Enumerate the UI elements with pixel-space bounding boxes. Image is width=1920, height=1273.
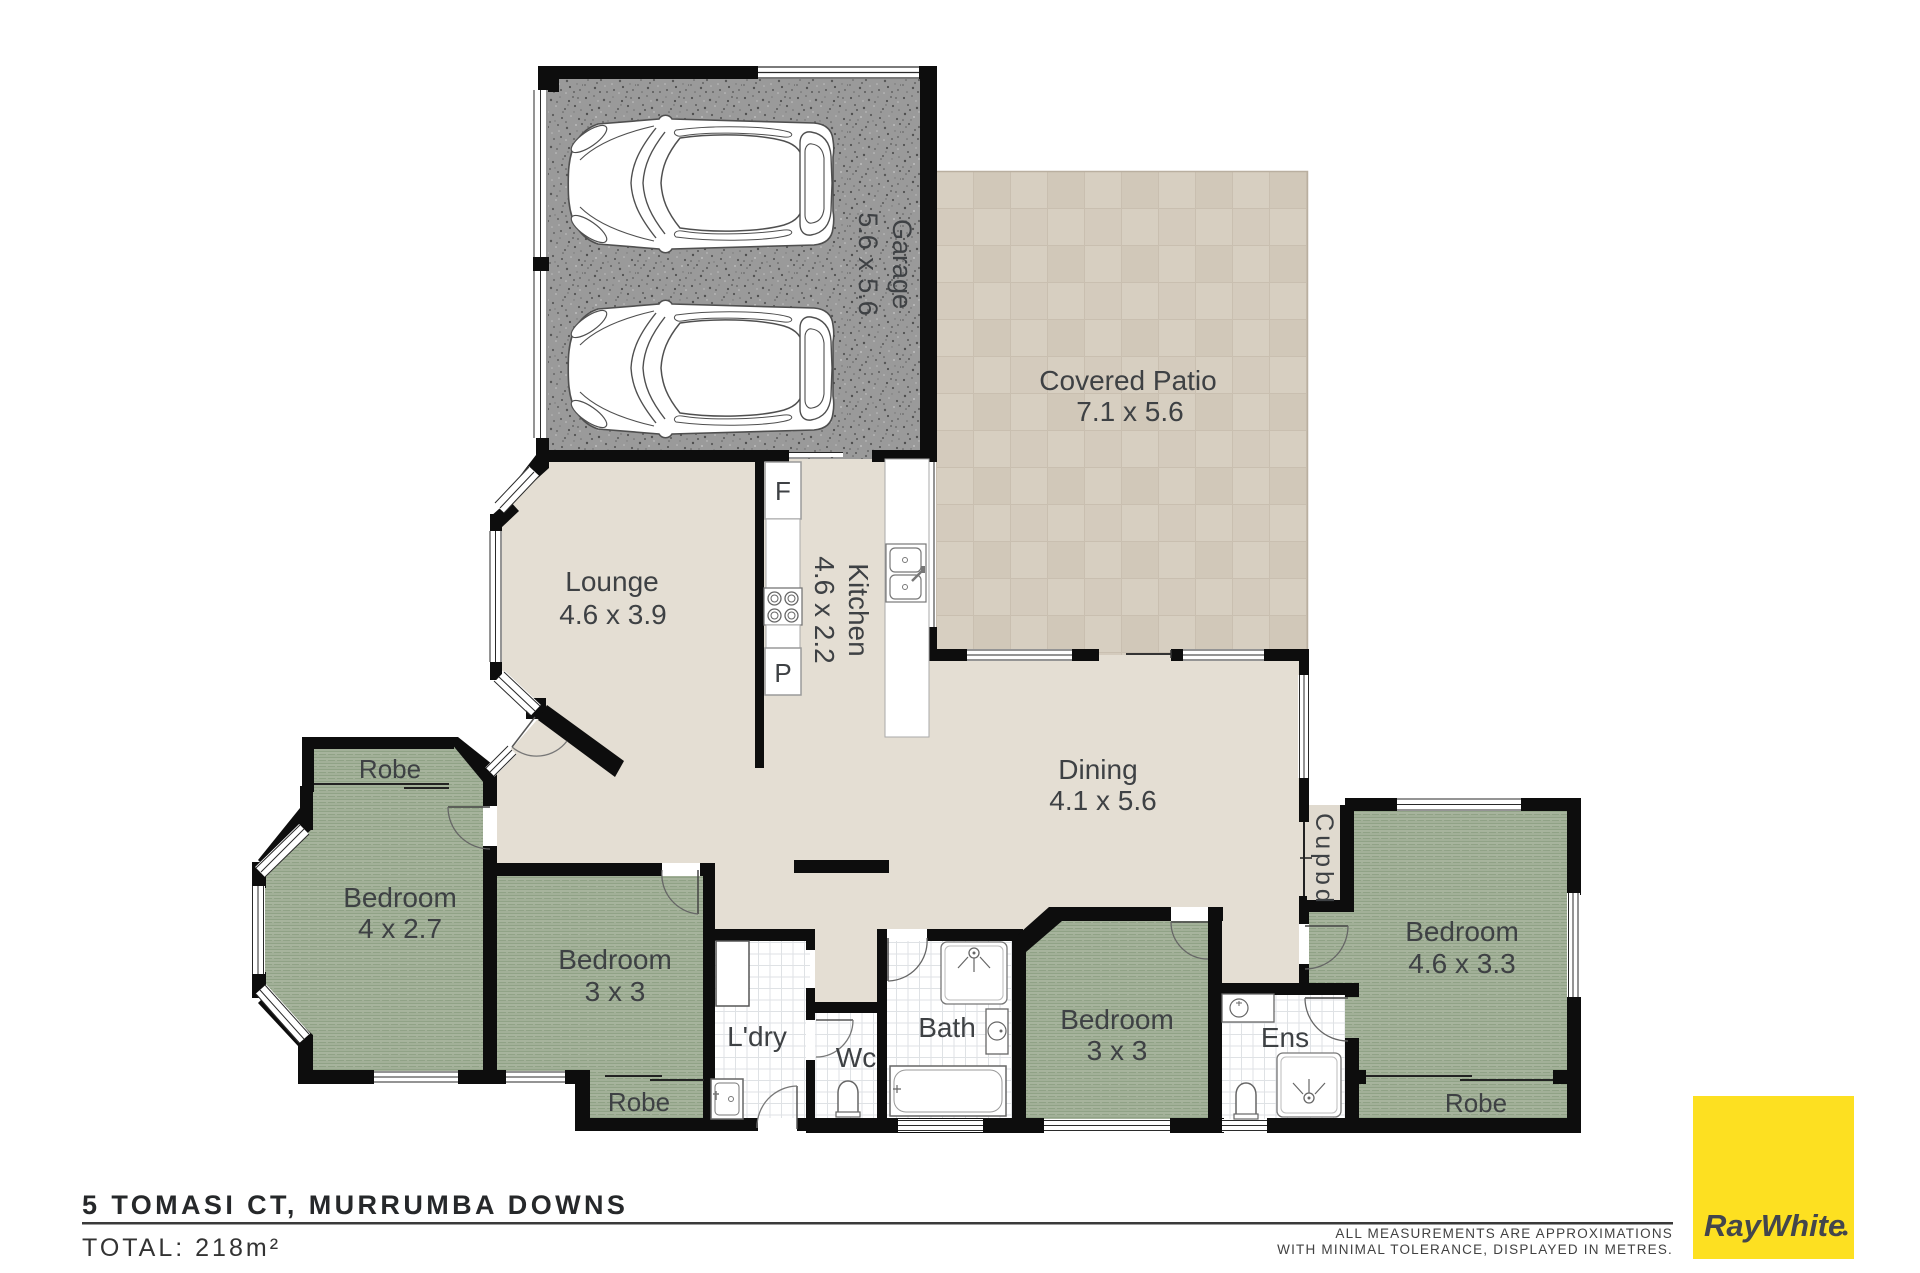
svg-text:Covered Patio: Covered Patio [1039,365,1216,396]
svg-text:Robe: Robe [608,1087,670,1117]
svg-text:TOTAL: 218m²: TOTAL: 218m² [82,1234,281,1262]
svg-text:Bedroom: Bedroom [558,944,672,975]
svg-text:Dining: Dining [1058,754,1137,785]
svg-text:7.1 x 5.6: 7.1 x 5.6 [1076,396,1183,427]
svg-text:5 TOMASI CT, MURRUMBA DOWNS: 5 TOMASI CT, MURRUMBA DOWNS [82,1190,628,1220]
svg-text:4.1 x 5.6: 4.1 x 5.6 [1049,785,1156,816]
svg-text:3 x 3: 3 x 3 [1087,1035,1148,1066]
svg-text:RayWhite: RayWhite [1704,1208,1845,1243]
svg-text:4 x 2.7: 4 x 2.7 [358,913,442,944]
svg-text:P: P [774,658,791,688]
svg-text:Robe: Robe [359,754,421,784]
svg-text:5.6 x 5.6: 5.6 x 5.6 [853,212,883,316]
svg-text:Bath: Bath [918,1012,976,1043]
svg-text:4.6 x 3.3: 4.6 x 3.3 [1408,948,1515,979]
svg-text:Ens: Ens [1261,1022,1309,1053]
svg-text:Bedroom: Bedroom [343,882,457,913]
svg-text:Cupbd: Cupbd [1310,813,1338,907]
svg-text:3 x 3: 3 x 3 [585,976,646,1007]
svg-text:4.6 x 2.2: 4.6 x 2.2 [809,556,840,663]
svg-text:ALL MEASUREMENTS ARE APPROXIMA: ALL MEASUREMENTS ARE APPROXIMATIONS [1335,1226,1673,1241]
svg-text:Bedroom: Bedroom [1060,1004,1174,1035]
svg-text:Lounge: Lounge [565,566,658,597]
svg-text:F: F [775,476,791,506]
svg-text:WITH MINIMAL TOLERANCE, DISPLA: WITH MINIMAL TOLERANCE, DISPLAYED IN MET… [1277,1242,1673,1257]
svg-text:Robe: Robe [1445,1088,1507,1118]
svg-text:Garage: Garage [887,219,917,309]
svg-text:L'dry: L'dry [727,1021,787,1052]
svg-text:4.6 x 3.9: 4.6 x 3.9 [559,599,666,630]
svg-text:Bedroom: Bedroom [1405,916,1519,947]
svg-text:Kitchen: Kitchen [843,563,874,656]
svg-text:Wc: Wc [836,1042,876,1073]
